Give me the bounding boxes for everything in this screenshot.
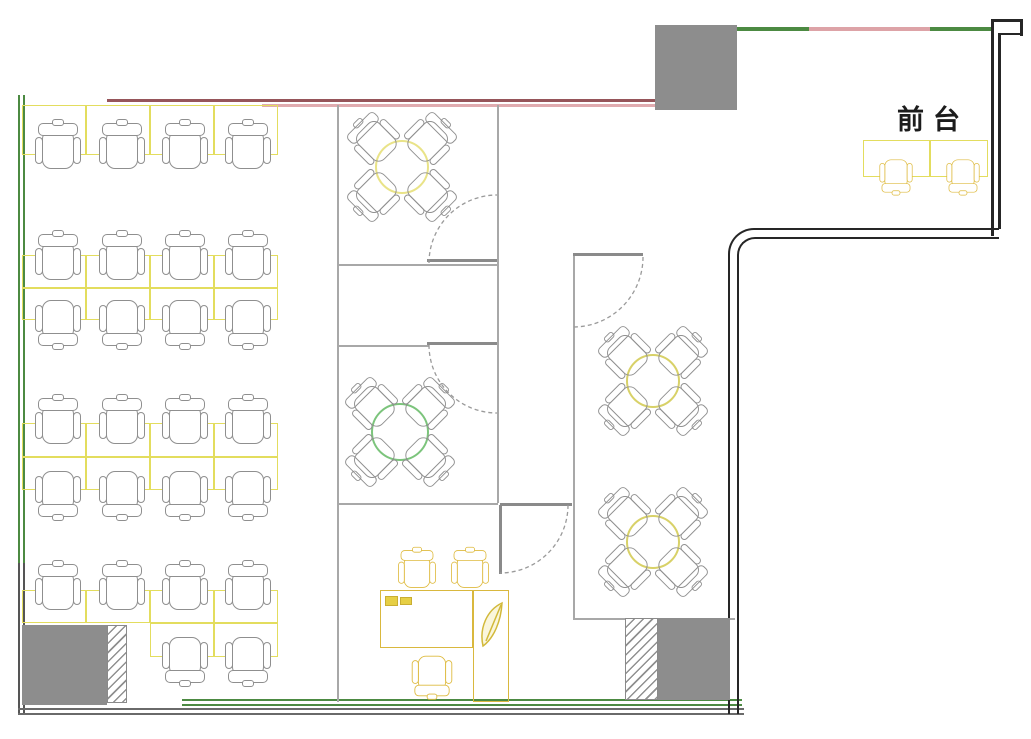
left-wall-inner-green [23, 95, 25, 565]
chair-icon [35, 467, 81, 521]
chair-icon [35, 296, 81, 350]
chair-icon [225, 467, 271, 521]
chair-icon [225, 560, 271, 614]
chair-icon [99, 119, 145, 173]
right-wall-outer [991, 22, 994, 236]
chair-icon [162, 560, 208, 614]
chair-icon [225, 119, 271, 173]
rooms-left-wall [337, 105, 339, 702]
floor-plan-canvas: 前台 [0, 0, 1031, 739]
chair-icon [398, 547, 436, 591]
door-leaf-top-room [427, 259, 497, 262]
shaft-hatch-left [107, 625, 127, 703]
top-notch-top [991, 19, 1023, 22]
column-bottom-right [658, 618, 730, 700]
chair-icon [162, 467, 208, 521]
chair-icon [99, 230, 145, 284]
chair-icon [162, 394, 208, 448]
chair-icon [35, 119, 81, 173]
chair-icon [99, 467, 145, 521]
left-wall-outer-gray [18, 563, 20, 713]
reception-label: 前台 [897, 98, 969, 137]
chair-icon [225, 633, 271, 687]
door-arc-right-room [573, 257, 643, 327]
desk [473, 590, 509, 702]
rooms-right-wall [497, 105, 499, 503]
corridor-return-wall-inner [737, 237, 999, 714]
top-wall-pink [262, 104, 655, 107]
door-arc-office [500, 505, 568, 573]
door-leaf-office [499, 505, 502, 574]
chair-icon [35, 394, 81, 448]
computer-icon [400, 597, 412, 605]
chair-icon [99, 296, 145, 350]
chair-icon [879, 157, 912, 196]
top-wall-dark-red [107, 99, 655, 102]
right-room-left-wall [573, 255, 575, 618]
office-top-wall [337, 503, 498, 505]
bottom-wall-green-2 [182, 704, 742, 706]
door-leaf-right-room [573, 253, 643, 256]
chair-icon [162, 633, 208, 687]
chair-icon [451, 547, 489, 591]
left-wall-outer-green [18, 95, 20, 565]
chair-icon [225, 394, 271, 448]
meeting-room-mid-top-wall [337, 345, 429, 347]
chair-icon [35, 230, 81, 284]
chair-icon [162, 230, 208, 284]
top-wall-pink-2 [809, 27, 930, 31]
door-header-office [500, 503, 572, 506]
chair-icon [99, 560, 145, 614]
shaft-hatch-right [625, 618, 658, 700]
chair-icon [412, 652, 452, 700]
bottom-wall-gray-inner [18, 713, 744, 715]
chair-icon [35, 560, 81, 614]
door-leaf-mid-room [427, 342, 497, 345]
bottom-wall-gray-outer [18, 708, 744, 710]
chair-icon [946, 157, 979, 196]
column-bottom-left [22, 625, 107, 705]
meeting-room-top-bottom-wall [337, 264, 497, 266]
top-notch-bottom [998, 33, 1023, 35]
top-wall-green-1 [737, 27, 809, 31]
chair-icon [99, 394, 145, 448]
chair-icon [162, 119, 208, 173]
computer-icon [385, 596, 398, 606]
chair-icon [225, 230, 271, 284]
top-wall-green-2 [930, 27, 991, 31]
right-wall-inner [998, 33, 1001, 229]
chair-icon [225, 296, 271, 350]
column-top [655, 25, 737, 110]
chair-icon [162, 296, 208, 350]
